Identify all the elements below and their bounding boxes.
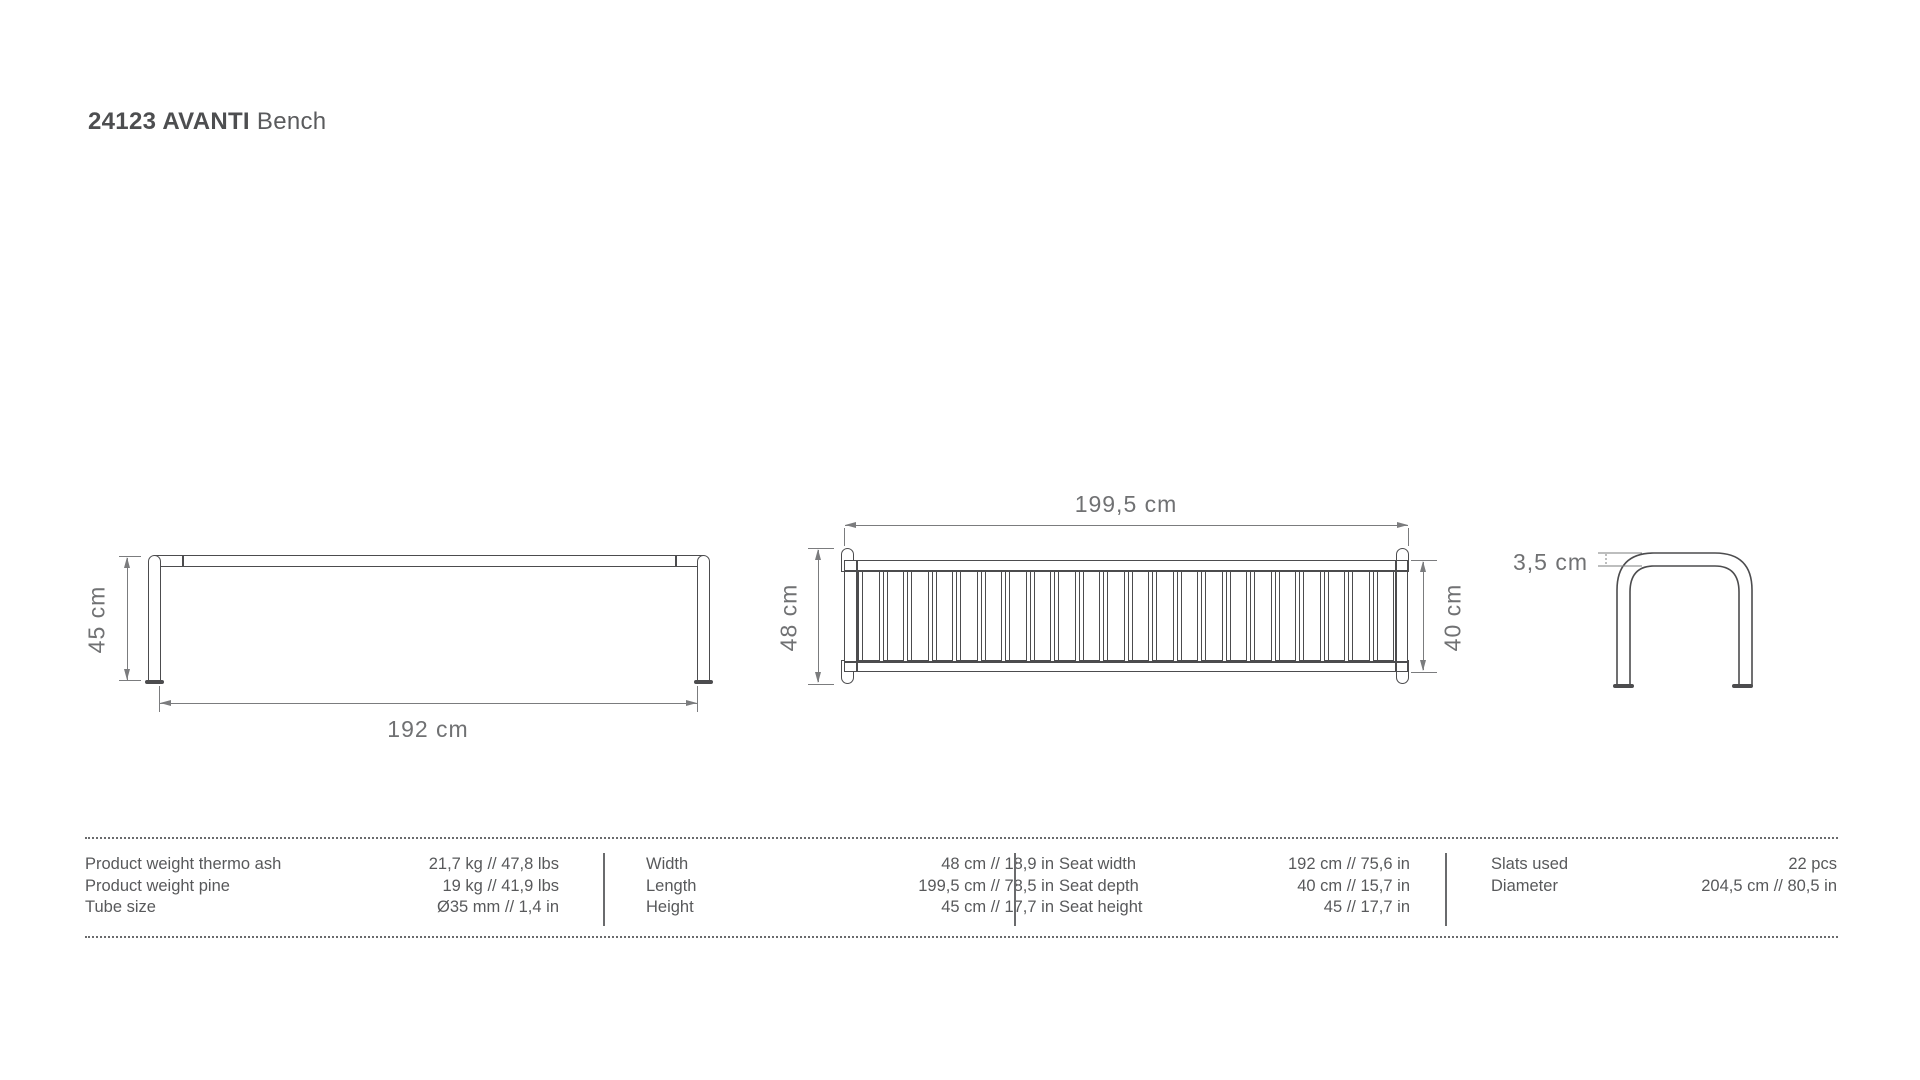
front-right-foot <box>694 680 713 684</box>
seat-profile <box>154 555 704 567</box>
arrowhead-up <box>124 557 130 568</box>
extension-line <box>808 684 834 685</box>
spec-value: 192 cm // 75,6 in <box>1288 854 1410 876</box>
dimension-line <box>160 703 697 704</box>
spec-label: Seat height <box>1059 897 1142 919</box>
slat <box>1348 571 1370 661</box>
slat <box>1128 571 1150 661</box>
spec-value: 204,5 cm // 80,5 in <box>1701 876 1837 898</box>
slat <box>1005 571 1027 661</box>
slat <box>1079 571 1101 661</box>
page-title: 24123 AVANTIBench <box>88 108 326 136</box>
joint-tick-right <box>675 556 677 566</box>
spec-value: Ø35 mm // 1,4 in <box>437 897 559 919</box>
slat <box>956 571 978 661</box>
column-divider <box>1445 853 1447 926</box>
joint-tick-left <box>182 556 184 566</box>
spec-label: Seat depth <box>1059 876 1139 898</box>
column-divider <box>603 853 605 926</box>
table-row: Tube size Ø35 mm // 1,4 in <box>85 897 559 919</box>
front-right-leg <box>697 555 710 682</box>
slat <box>1299 571 1321 661</box>
spec-label: Length <box>646 876 696 898</box>
spec-value: 45 // 17,7 in <box>1324 897 1410 919</box>
spec-sheet-page: 24123 AVANTIBench 45 cm 19 <box>0 0 1920 1080</box>
spec-label: Product weight thermo ash <box>85 854 281 876</box>
side-view-frame <box>1598 546 1768 692</box>
slat <box>1324 571 1346 661</box>
table-row: Width 48 cm // 18,9 in <box>646 854 1054 876</box>
table-row: Product weight pine 19 kg // 41,9 lbs <box>85 876 559 898</box>
spec-value: 22 pcs <box>1788 854 1837 876</box>
arrowhead-left <box>160 700 171 706</box>
slat <box>907 571 929 661</box>
extension-line <box>119 556 141 557</box>
arrowhead-down <box>124 669 130 680</box>
front-width-label: 192 cm <box>378 716 478 743</box>
slats <box>858 571 1394 661</box>
extension-line <box>159 686 160 712</box>
spec-label: Slats used <box>1491 854 1568 876</box>
right-end-line <box>1395 560 1397 672</box>
slat <box>1103 571 1125 661</box>
slat <box>1250 571 1272 661</box>
side-left-foot <box>1613 684 1634 688</box>
spec-group-weights: Product weight thermo ash 21,7 kg // 47,… <box>85 854 559 919</box>
side-right-foot <box>1732 684 1753 688</box>
spec-group-overall-dimensions: Width 48 cm // 18,9 in Length 199,5 cm /… <box>646 854 1054 919</box>
front-left-leg <box>148 555 161 682</box>
slat <box>1054 571 1076 661</box>
extension-line <box>697 686 698 712</box>
dimension-line <box>845 525 1408 526</box>
front-left-foot <box>145 680 164 684</box>
arrowhead-right <box>1397 522 1408 528</box>
arrowhead-up <box>1420 561 1426 572</box>
front-height-label: 45 cm <box>84 570 111 670</box>
arrowhead-right <box>686 700 697 706</box>
slat <box>1201 571 1223 661</box>
dimension-line <box>818 550 819 682</box>
spec-value: 48 cm // 18,9 in <box>941 854 1054 876</box>
top-length-label: 199,5 cm <box>1066 491 1186 518</box>
slat <box>1177 571 1199 661</box>
extension-line <box>844 528 845 546</box>
spec-label: Product weight pine <box>85 876 230 898</box>
spec-label: Diameter <box>1491 876 1558 898</box>
extension-line <box>1411 672 1437 673</box>
slat <box>858 571 880 661</box>
top-overall-depth-label: 48 cm <box>776 568 803 668</box>
spec-value: 40 cm // 15,7 in <box>1297 876 1410 898</box>
spec-label: Tube size <box>85 897 156 919</box>
product-name: Bench <box>257 108 327 135</box>
side-tube-diameter-label: 3,5 cm <box>1496 549 1588 576</box>
extension-line <box>808 548 834 549</box>
spec-value: 45 cm // 17,7 in <box>941 897 1054 919</box>
arrowhead-down <box>815 672 821 683</box>
spec-value: 19 kg // 41,9 lbs <box>443 876 560 898</box>
table-row: Diameter 204,5 cm // 80,5 in <box>1491 876 1837 898</box>
extension-line <box>119 680 141 681</box>
slat <box>981 571 1003 661</box>
slat <box>932 571 954 661</box>
back-rail-line <box>844 661 1408 663</box>
spec-value: 21,7 kg // 47,8 lbs <box>429 854 559 876</box>
table-row: Seat height 45 // 17,7 in <box>1059 897 1410 919</box>
table-row: Height 45 cm // 17,7 in <box>646 897 1054 919</box>
extension-line <box>1408 528 1409 546</box>
slat <box>1226 571 1248 661</box>
spec-group-materials: Slats used 22 pcs Diameter 204,5 cm // 8… <box>1491 854 1837 897</box>
top-seat-depth-label: 40 cm <box>1440 568 1467 668</box>
spec-label: Seat width <box>1059 854 1136 876</box>
arrowhead-down <box>1420 660 1426 671</box>
arrowhead-left <box>845 522 856 528</box>
spec-label: Height <box>646 897 694 919</box>
slat <box>1275 571 1297 661</box>
spec-value: 199,5 cm // 78,5 in <box>918 876 1054 898</box>
spec-table: Product weight thermo ash 21,7 kg // 47,… <box>85 837 1838 938</box>
slat <box>883 571 905 661</box>
slat <box>1030 571 1052 661</box>
spec-label: Width <box>646 854 688 876</box>
slat <box>1373 571 1395 661</box>
table-row: Product weight thermo ash 21,7 kg // 47,… <box>85 854 559 876</box>
table-row: Seat width 192 cm // 75,6 in <box>1059 854 1410 876</box>
dimension-line <box>1423 562 1424 670</box>
slat <box>1152 571 1174 661</box>
product-code: 24123 AVANTI <box>88 108 250 135</box>
dimension-line <box>127 558 128 680</box>
arrowhead-up <box>815 549 821 560</box>
table-row: Length 199,5 cm // 78,5 in <box>646 876 1054 898</box>
spec-group-seat-dimensions: Seat width 192 cm // 75,6 in Seat depth … <box>1059 854 1410 919</box>
table-row: Seat depth 40 cm // 15,7 in <box>1059 876 1410 898</box>
column-divider <box>1014 853 1016 926</box>
table-row: Slats used 22 pcs <box>1491 854 1837 876</box>
